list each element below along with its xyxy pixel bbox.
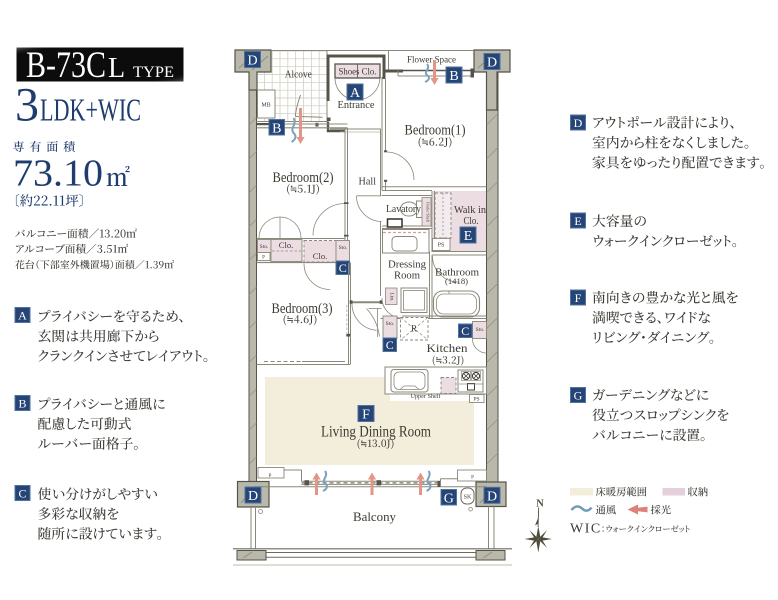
svg-text:P: P <box>471 476 474 481</box>
svg-text:WIC: WIC <box>570 522 602 537</box>
svg-text:C: C <box>461 324 469 338</box>
svg-text:73.10: 73.10 <box>13 153 103 195</box>
svg-text:Walk in: Walk in <box>454 205 487 216</box>
svg-text:PS: PS <box>438 243 445 249</box>
svg-text:Sto.: Sto. <box>260 244 269 250</box>
svg-text:Kitchen: Kitchen <box>427 341 468 355</box>
svg-text:P: P <box>269 474 272 479</box>
svg-text:A: A <box>350 86 361 101</box>
svg-text:C: C <box>18 486 26 500</box>
svg-text:D: D <box>574 116 583 130</box>
svg-text:TYPE: TYPE <box>133 64 174 81</box>
svg-text:Under Shelf: Under Shelf <box>426 202 431 223</box>
svg-text:(1418): (1418) <box>445 277 468 286</box>
svg-text:A: A <box>18 308 27 322</box>
svg-text:D: D <box>487 489 497 504</box>
svg-text:PS: PS <box>473 397 479 403</box>
svg-text:F: F <box>362 408 370 423</box>
svg-text:Flower Space: Flower Space <box>407 55 456 65</box>
svg-text:Bedroom(2): Bedroom(2) <box>273 170 334 186</box>
svg-text:P: P <box>262 256 265 261</box>
svg-text:F: F <box>575 291 582 305</box>
svg-text:E: E <box>574 214 581 228</box>
svg-text:Lavatory: Lavatory <box>386 203 421 215</box>
svg-text:Sto.: Sto. <box>476 327 485 333</box>
svg-text:B: B <box>272 121 281 136</box>
svg-text:E: E <box>464 229 473 244</box>
svg-text:Entrance: Entrance <box>338 100 376 111</box>
svg-text:Shoes Clo.: Shoes Clo. <box>339 68 377 78</box>
svg-text:Clo.: Clo. <box>313 251 327 261</box>
svg-text:Balcony: Balcony <box>353 510 397 524</box>
svg-text:D: D <box>247 54 257 69</box>
svg-text:G: G <box>574 388 583 402</box>
svg-text:C: C <box>386 338 394 352</box>
svg-text:Clo.: Clo. <box>464 216 479 227</box>
svg-text:B: B <box>449 69 458 84</box>
svg-text:G: G <box>444 491 454 506</box>
svg-text:D: D <box>248 489 258 504</box>
svg-text:Bedroom(3): Bedroom(3) <box>272 301 333 317</box>
svg-text:C: C <box>339 261 347 275</box>
svg-text:Alcove: Alcove <box>285 70 313 81</box>
svg-text:L: L <box>108 53 125 84</box>
svg-text:Upper Shelf: Upper Shelf <box>411 393 442 400</box>
svg-text:D: D <box>487 56 497 71</box>
svg-text:Sto.: Sto. <box>386 321 395 327</box>
svg-text:N: N <box>536 499 544 510</box>
svg-text:Room: Room <box>394 270 420 282</box>
svg-text:Hall: Hall <box>359 176 377 188</box>
svg-text:Clo.: Clo. <box>279 240 293 250</box>
svg-text:LDK+WIC: LDK+WIC <box>40 93 141 128</box>
svg-text:B: B <box>18 396 26 410</box>
svg-text:R: R <box>411 324 417 334</box>
svg-text:Living Dining Room: Living Dining Room <box>321 424 431 441</box>
svg-text:Sto.: Sto. <box>339 245 348 251</box>
svg-text:Lin.: Lin. <box>389 292 395 302</box>
svg-text:3: 3 <box>15 79 39 132</box>
svg-text:MB: MB <box>261 103 270 109</box>
svg-text:SK: SK <box>464 495 472 501</box>
svg-text:Bedroom(1): Bedroom(1) <box>405 123 466 139</box>
